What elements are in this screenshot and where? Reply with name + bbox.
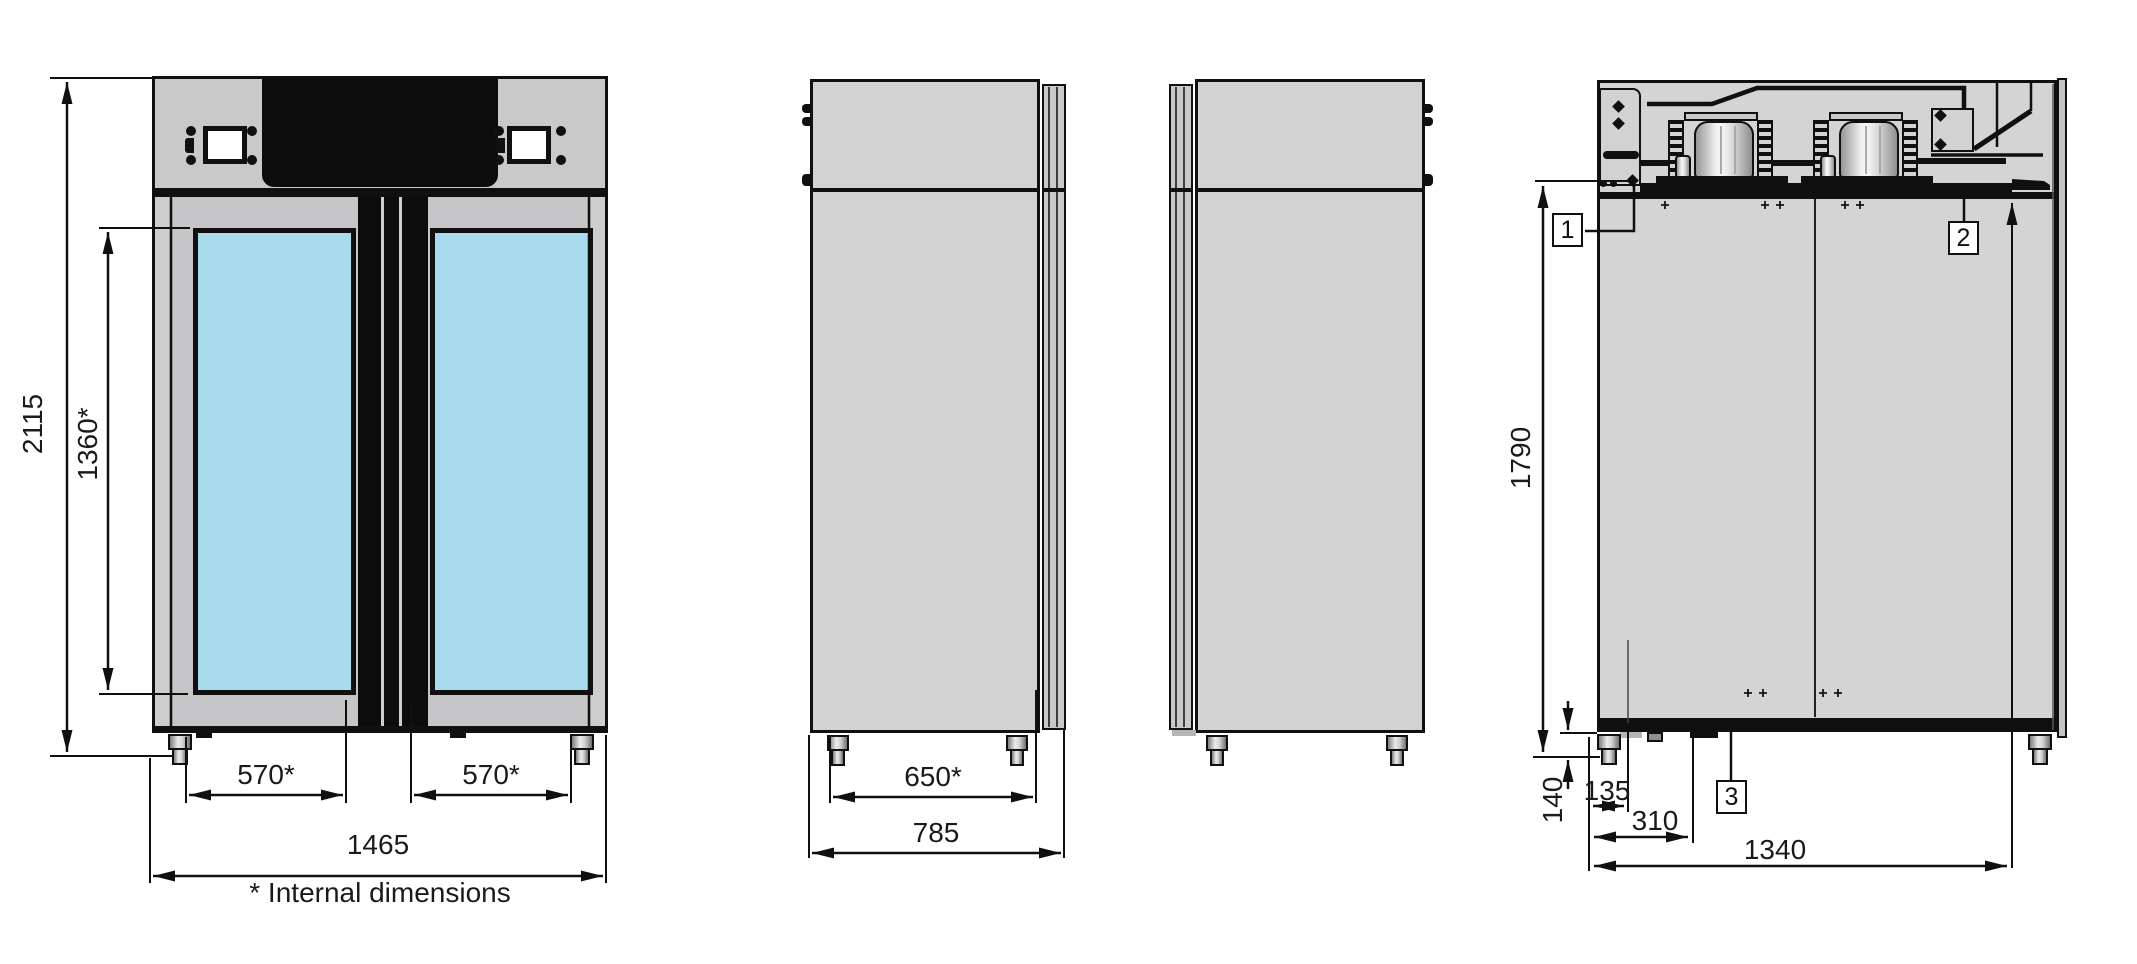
dim-side-internal-depth: 650* (904, 763, 962, 791)
front-extension-lines (50, 78, 606, 883)
dim-front-internal-height: 1360* (74, 407, 102, 480)
dim-front-internal-width-right: 570* (462, 761, 520, 789)
dim-front-overall-height: 2115 (19, 394, 47, 454)
dim-rear-height: 1790 (1507, 427, 1535, 489)
callout-2: 2 (1948, 221, 1979, 255)
rear-dimension-lines (1543, 186, 2007, 866)
dim-rear-foot-height: 140 (1539, 777, 1567, 824)
dim-front-overall-width: 1465 (347, 831, 409, 859)
screw-plus-marks (1661, 201, 1864, 697)
dim-rear-offset-mid: 310 (1632, 807, 1679, 835)
rear-detail-lines (1628, 83, 2053, 730)
rear-extension-lines (1533, 181, 2012, 871)
callout-3: 3 (1716, 780, 1747, 814)
side-left-detail-lines (812, 87, 1066, 727)
callout-leader-lines (1585, 185, 1964, 780)
dim-rear-width: 1340 (1744, 836, 1806, 864)
dimension-linework (0, 0, 2137, 964)
dim-side-overall-depth: 785 (913, 819, 960, 847)
callout-1: 1 (1552, 213, 1583, 247)
dim-front-internal-width-left: 570* (237, 761, 295, 789)
front-detail-lines (171, 197, 589, 730)
dim-rear-offset-small: 135 (1584, 777, 1631, 805)
side-right-detail-lines (1169, 87, 1424, 727)
internal-dimensions-note: * Internal dimensions (249, 879, 510, 907)
dimension-drawing: 2115 1360* 570* 570* 1465 * Internal dim… (0, 0, 2137, 964)
